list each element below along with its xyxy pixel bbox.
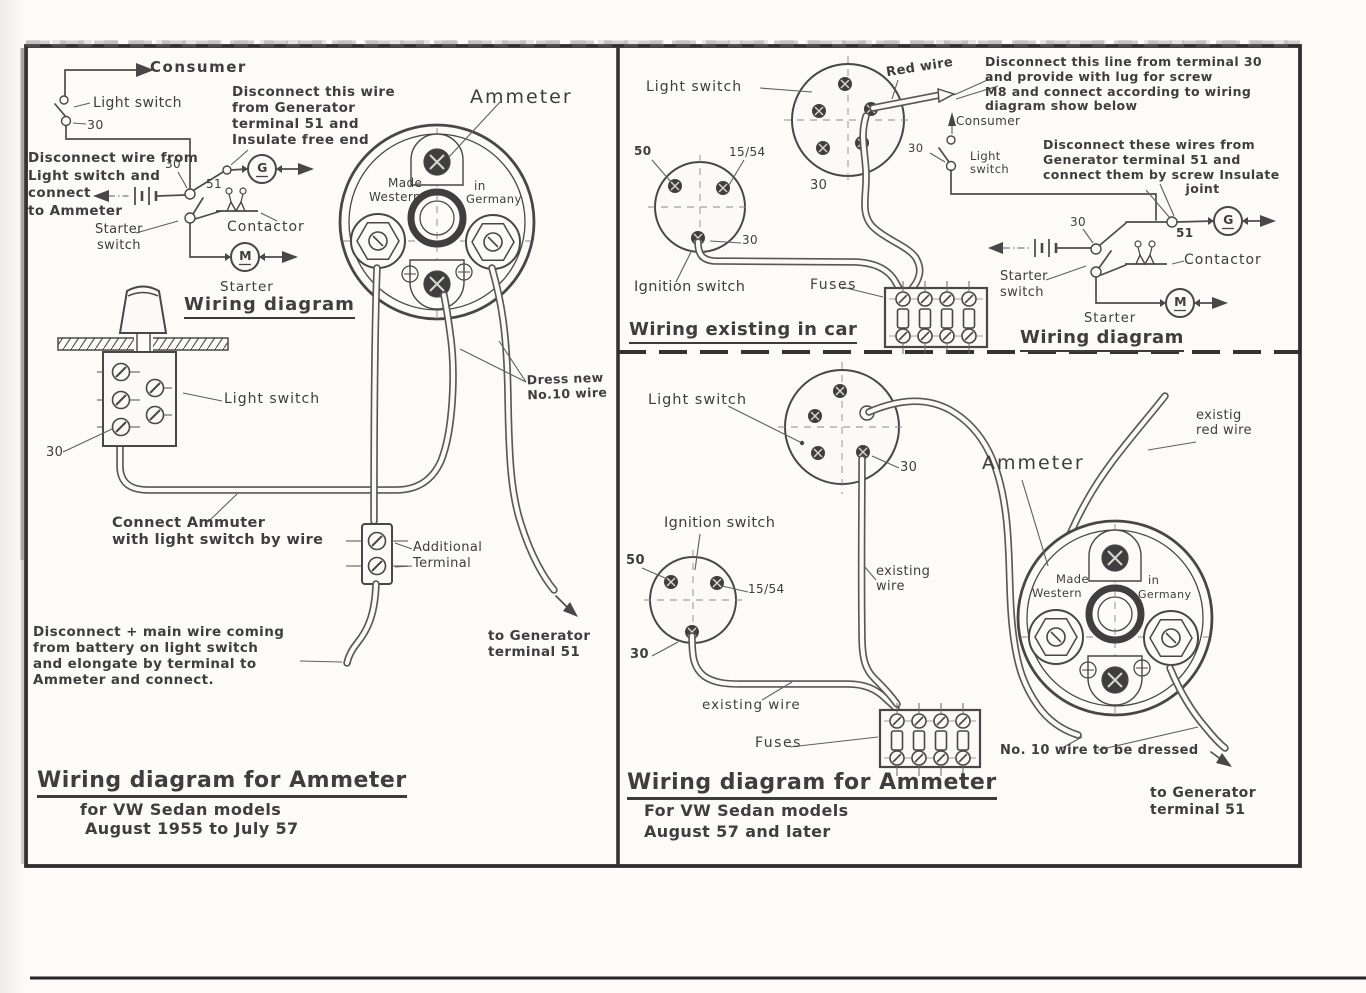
later-50-label: 50	[626, 553, 645, 569]
footer-title-later: Wiring diagram for Ammeter	[627, 770, 997, 800]
later-ignition-switch-label: Ignition switch	[664, 515, 775, 532]
consumer-label: Consumer	[150, 58, 247, 76]
fuses-label-existing: Fuses	[810, 277, 857, 294]
additional-terminal-label: Additional Terminal	[413, 540, 482, 571]
scanned-wiring-diagram-sheet: .ln{stroke:#4c4c4c;stroke-width:1.7;fill…	[0, 0, 1366, 993]
section-title-existing-text: Wiring existing in car	[629, 319, 857, 344]
later-30-ign-label: 30	[630, 647, 649, 663]
ammeter-face-germany: Germany	[466, 193, 522, 207]
note-connect-ammeter: Connect Ammuter with light switch by wir…	[112, 515, 323, 550]
ammeter-face-made: Made	[388, 176, 422, 190]
terminal-30-label: 30	[87, 117, 104, 132]
later-1554-label: 15/54	[748, 582, 785, 596]
generator-letter-right: G	[1221, 212, 1236, 227]
light-switch-drawing-label: Light switch	[224, 391, 320, 408]
starter-switch-label-right: Starter switch	[1000, 269, 1048, 300]
later-face-in: in	[1148, 574, 1159, 588]
existing-1554-label: 15/54	[729, 145, 766, 159]
existing-wire-vertical-label: existing wire	[876, 565, 930, 595]
later-30-light-label: 30	[900, 460, 917, 476]
later-ammeter-label: Ammeter	[982, 452, 1085, 475]
later-light-switch-label: Light switch	[648, 392, 747, 409]
section-title-new-wiring: Wiring diagram	[1020, 327, 1184, 352]
note-dress-new-wire: Dress new No.10 wire	[527, 370, 608, 403]
later-face-germany: Germany	[1138, 588, 1191, 601]
footer-line2-later: August 57 and later	[644, 822, 831, 841]
motor-symbol-letter: M	[238, 248, 253, 263]
footer-title-text: Wiring diagram for Ammeter	[37, 768, 407, 798]
footer-title-later-text: Wiring diagram for Ammeter	[627, 770, 997, 800]
starter-label: Starter	[220, 279, 274, 295]
starter-switch-label: Starter switch	[95, 222, 143, 253]
contactor-label: Contactor	[227, 219, 305, 236]
starter-label-right: Starter	[1084, 311, 1136, 327]
section-title-existing: Wiring existing in car	[629, 319, 857, 344]
existing-light-switch-label: Light switch	[646, 79, 742, 96]
existing-30-ign-label: 30	[742, 233, 758, 247]
existing-wire-horizontal-label: existing wire	[702, 697, 801, 713]
light-switch-label: Light switch	[93, 95, 182, 112]
existing-30-light-label: 30	[810, 178, 827, 194]
fuse-box-existing	[885, 281, 987, 354]
ignition-switch-label: Ignition switch	[634, 279, 745, 296]
n30-battery-label: 30	[1070, 215, 1086, 229]
footer-line1-later: For VW Sedan models	[644, 801, 849, 820]
ammeter-face-western: Western	[369, 190, 421, 204]
section-title-wiring-diagram: Wiring diagram	[184, 294, 355, 319]
note-no10-wire: No. 10 wire to be dressed	[1000, 743, 1199, 759]
n51-label-right: 51	[1176, 226, 1194, 240]
note-disconnect-main: Disconnect + main wire coming from batte…	[33, 625, 284, 689]
schematic-later	[642, 362, 1232, 776]
existing-50-label: 50	[634, 144, 652, 158]
footer-line1-1955: for VW Sedan models	[80, 800, 281, 819]
light-switch-small-label: Light switch	[970, 150, 1009, 176]
wires-1955	[120, 268, 578, 663]
note-terminal51: Disconnect these wires from Generator te…	[1043, 138, 1280, 197]
existing-red-wire-label: existig red wire	[1196, 409, 1252, 439]
ammeter-label: Ammeter	[470, 86, 573, 109]
consumer-label-right: Consumer	[956, 114, 1020, 128]
fuse-box-later	[880, 703, 980, 776]
note-to-generator: to Generator terminal 51	[488, 628, 590, 660]
terminal-30-node-label: 30	[165, 157, 181, 171]
section-title-new-wiring-text: Wiring diagram	[1020, 327, 1184, 352]
light-switch-30-label: 30	[46, 445, 63, 461]
later-face-western: Western	[1032, 587, 1082, 601]
later-to-generator: to Generator terminal 51	[1150, 785, 1256, 819]
note-terminal30: Disconnect this line from terminal 30 an…	[985, 55, 1262, 114]
n30-consumer-label: 30	[908, 142, 923, 156]
footer-line2-1955: August 1955 to July 57	[85, 819, 299, 838]
fuses-label-later: Fuses	[755, 735, 802, 752]
motor-letter-right: M	[1173, 294, 1188, 309]
footer-title-1955: Wiring diagram for Ammeter	[37, 768, 407, 798]
generator-symbol-letter: G	[255, 160, 270, 175]
schematic-existing	[648, 56, 992, 354]
section-title-text: Wiring diagram	[184, 294, 355, 319]
contactor-label-right: Contactor	[1184, 252, 1262, 269]
note-disconnect-generator: Disconnect this wire from Generator term…	[232, 84, 395, 148]
later-face-made: Made	[1056, 573, 1089, 587]
terminal-51-label: 51	[206, 177, 222, 191]
